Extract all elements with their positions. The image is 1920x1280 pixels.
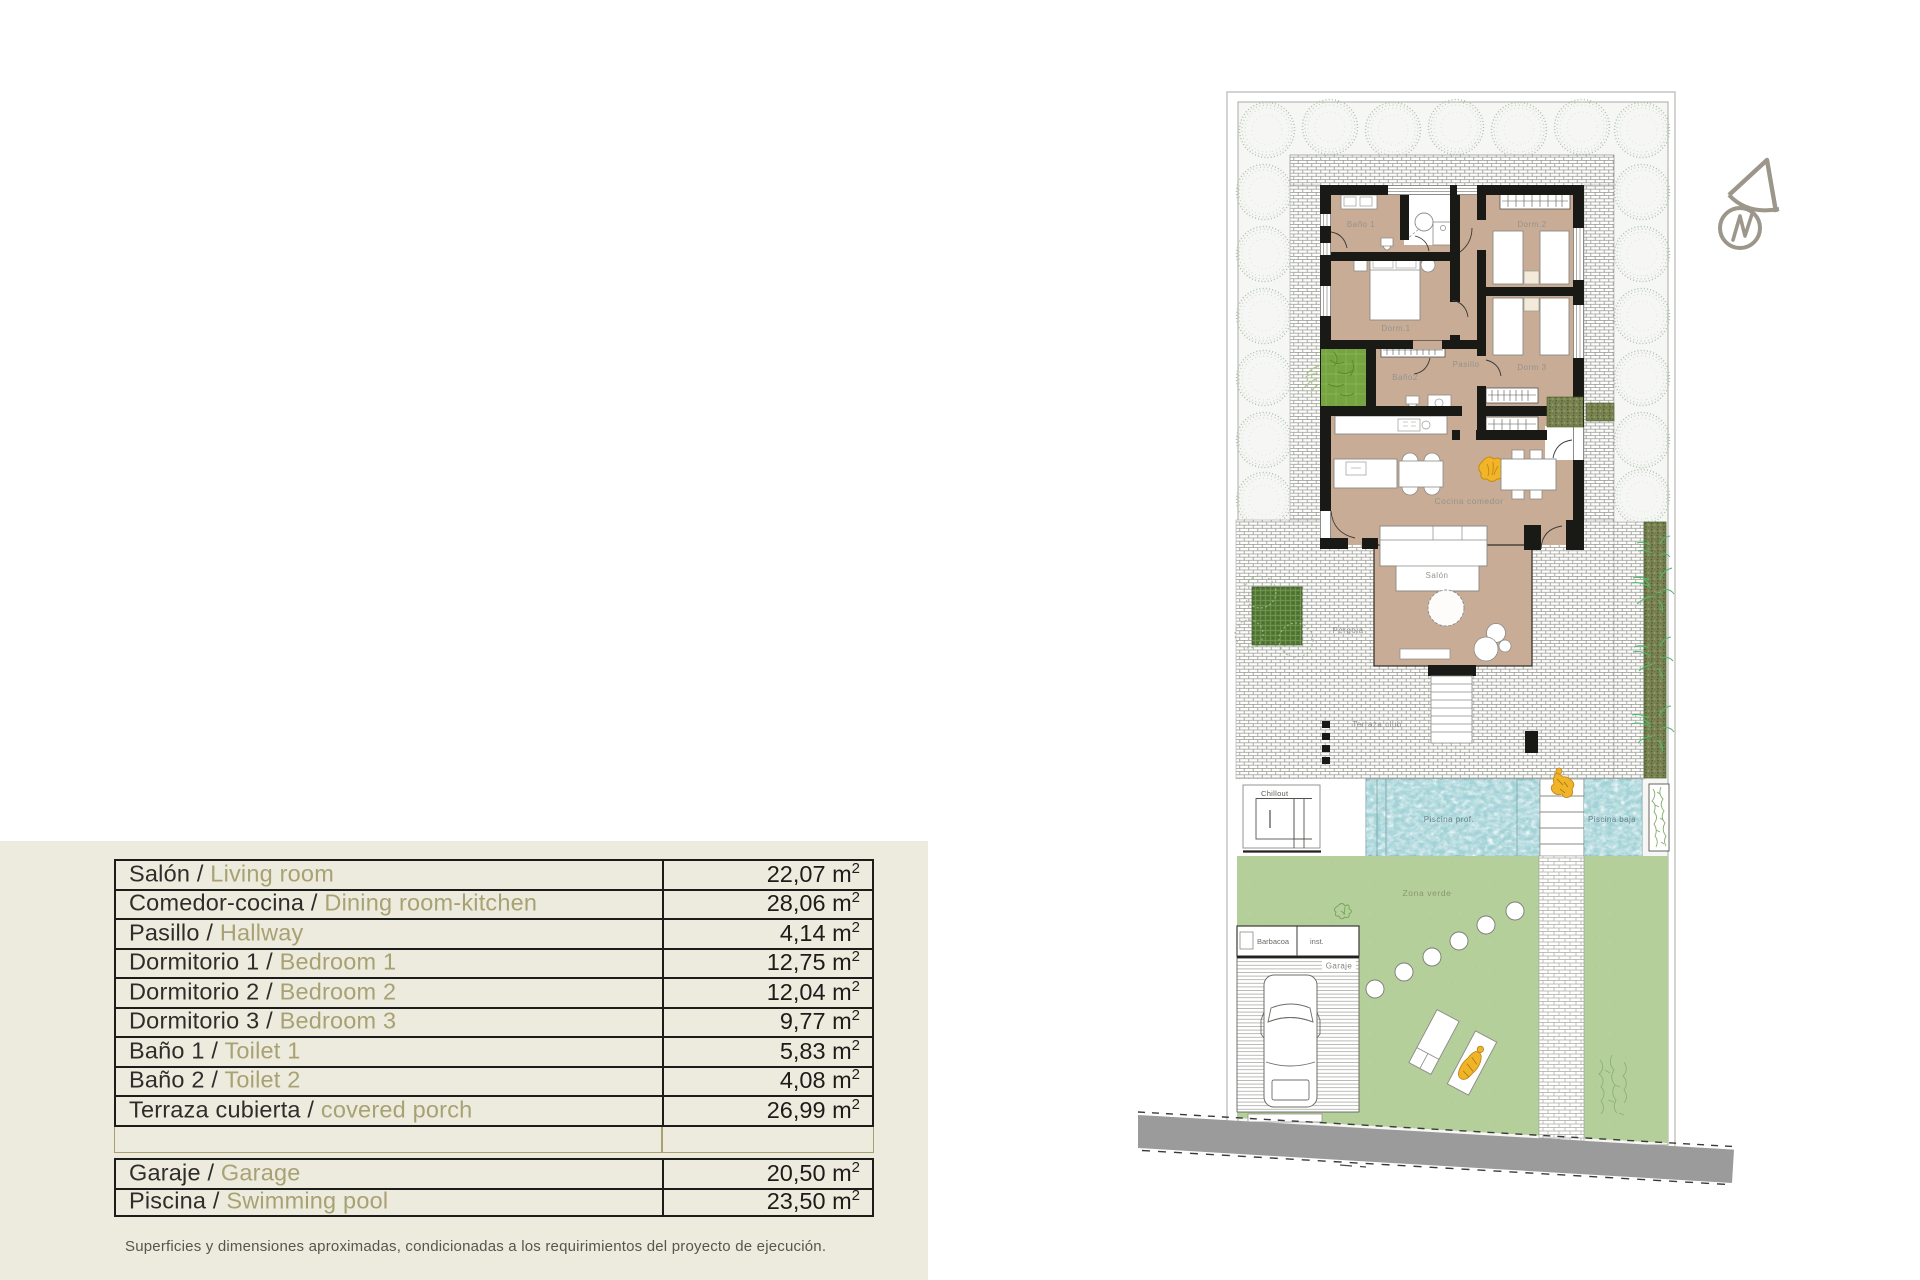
svg-text:Piscina prof.: Piscina prof.: [1424, 815, 1475, 824]
svg-text:Dorm.1: Dorm.1: [1381, 324, 1410, 333]
svg-text:Chillout: Chillout: [1261, 789, 1289, 798]
svg-text:Piscina baja: Piscina baja: [1588, 815, 1636, 824]
svg-text:Pérgola: Pérgola: [1332, 626, 1363, 635]
svg-text:Zona verde: Zona verde: [1403, 888, 1452, 898]
svg-text:Baño2: Baño2: [1392, 373, 1418, 382]
svg-text:Terraza club: Terraza club: [1352, 720, 1402, 729]
svg-text:Barbacoa: Barbacoa: [1257, 937, 1290, 946]
svg-text:Garaje: Garaje: [1326, 962, 1353, 971]
svg-text:Dorm.2: Dorm.2: [1517, 220, 1546, 229]
svg-text:inst.: inst.: [1310, 937, 1324, 946]
svg-text:Cocina comedor: Cocina comedor: [1435, 496, 1504, 506]
svg-text:Dorm 3: Dorm 3: [1517, 363, 1546, 372]
svg-text:Pasillo: Pasillo: [1452, 360, 1479, 369]
svg-text:Baño 1: Baño 1: [1347, 220, 1375, 229]
svg-text:Salón: Salón: [1426, 571, 1449, 580]
